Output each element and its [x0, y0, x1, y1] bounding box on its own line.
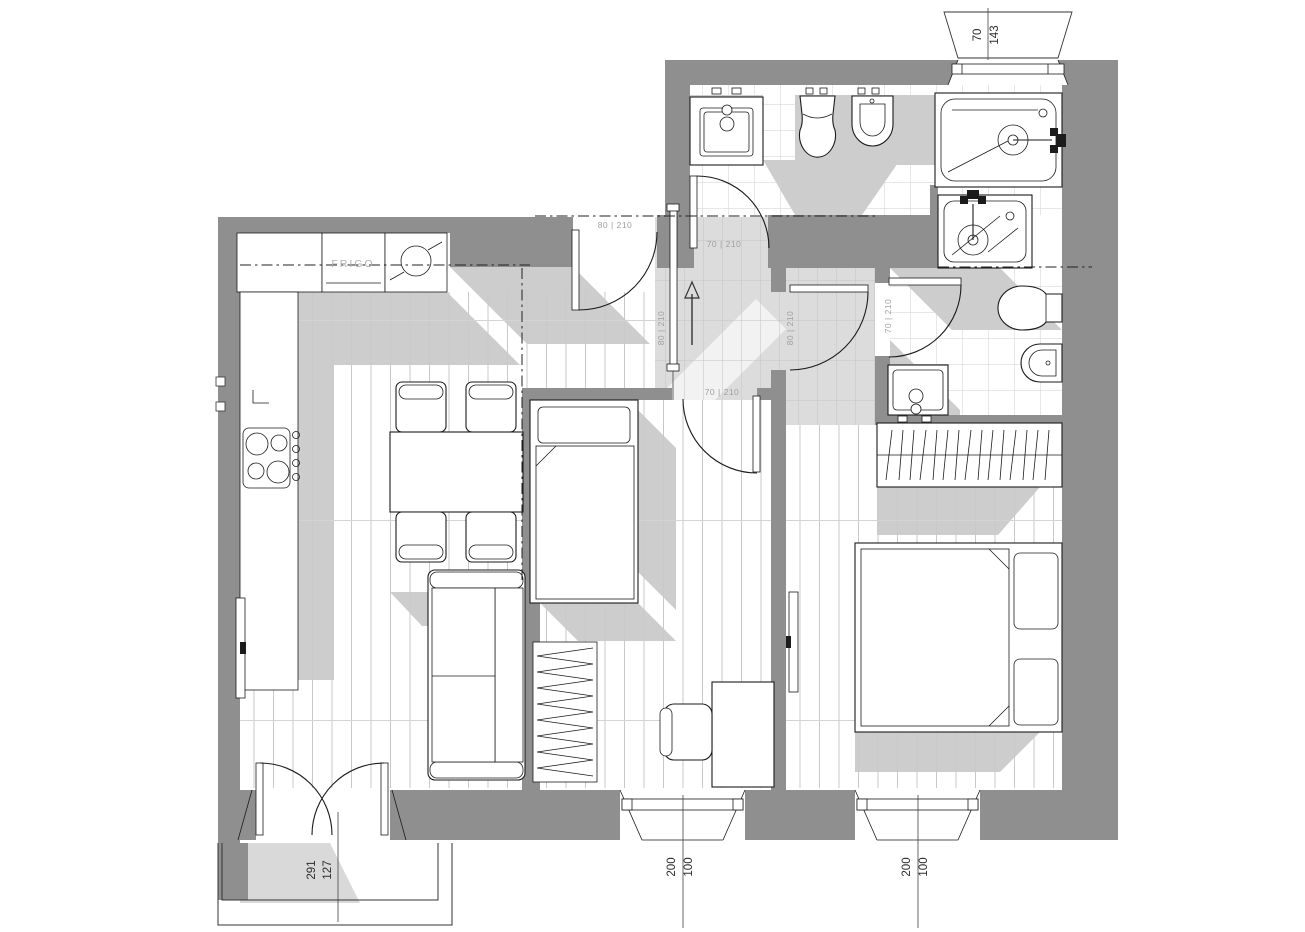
floor-plan-page: 70 143 127 291 100 200 100 200 80 | 210 … [0, 0, 1305, 932]
dining-chair [396, 512, 446, 562]
bathroom-door-tag: 70 | 210 [707, 239, 742, 249]
pillow [1014, 659, 1058, 725]
hall-sliding-door-tag: 80 | 210 [656, 311, 666, 346]
middle-room-door-tag: 70 | 210 [705, 387, 740, 397]
toilet [800, 88, 836, 157]
dim-text: 143 [989, 25, 1001, 44]
dining-chair [396, 382, 446, 432]
window-south-right [855, 790, 980, 840]
dim-text: 127 [322, 860, 334, 879]
floor-plan-drawing: 70 143 127 291 100 200 100 200 80 | 210 … [0, 0, 1305, 932]
washbasin-niche [938, 190, 1032, 268]
dim-text: 291 [306, 860, 318, 879]
bidet [852, 88, 893, 146]
wardrobe [877, 423, 1062, 487]
window-north [944, 12, 1072, 85]
desk [712, 682, 774, 787]
dining-chair [466, 512, 516, 562]
bathroom-sink [690, 88, 763, 165]
dimension-balcony-door: 127 291 [306, 812, 338, 922]
dining-chair [466, 382, 516, 432]
ensuite-bidet [1021, 344, 1062, 382]
pillow [538, 407, 630, 443]
dim-text: 100 [918, 857, 930, 876]
tv-living [236, 598, 246, 698]
single-bed [530, 400, 638, 603]
kitchen-counter [240, 292, 298, 690]
pillow [1014, 553, 1058, 629]
window-south-left [620, 790, 745, 840]
sofa [428, 570, 525, 780]
kitchen-sink [401, 246, 431, 276]
dining-table [390, 432, 523, 512]
ensuite-sink [888, 365, 948, 422]
fridge-label: FRIGO [331, 258, 374, 270]
desk-chair [660, 704, 712, 760]
entry-door-tag: 80 | 210 [598, 220, 633, 230]
bathtub [935, 93, 1066, 187]
ensuite-door-tag: 70 | 210 [883, 299, 893, 334]
corridor-door-tag: 80 | 210 [785, 311, 795, 346]
radiator-middle-room [533, 642, 597, 782]
dim-text: 70 [972, 29, 984, 42]
dim-text: 200 [901, 857, 913, 876]
dim-text: 100 [683, 857, 695, 876]
kitchen-cabinet [237, 233, 322, 292]
dim-text: 200 [666, 857, 678, 876]
double-bed [855, 543, 1062, 732]
